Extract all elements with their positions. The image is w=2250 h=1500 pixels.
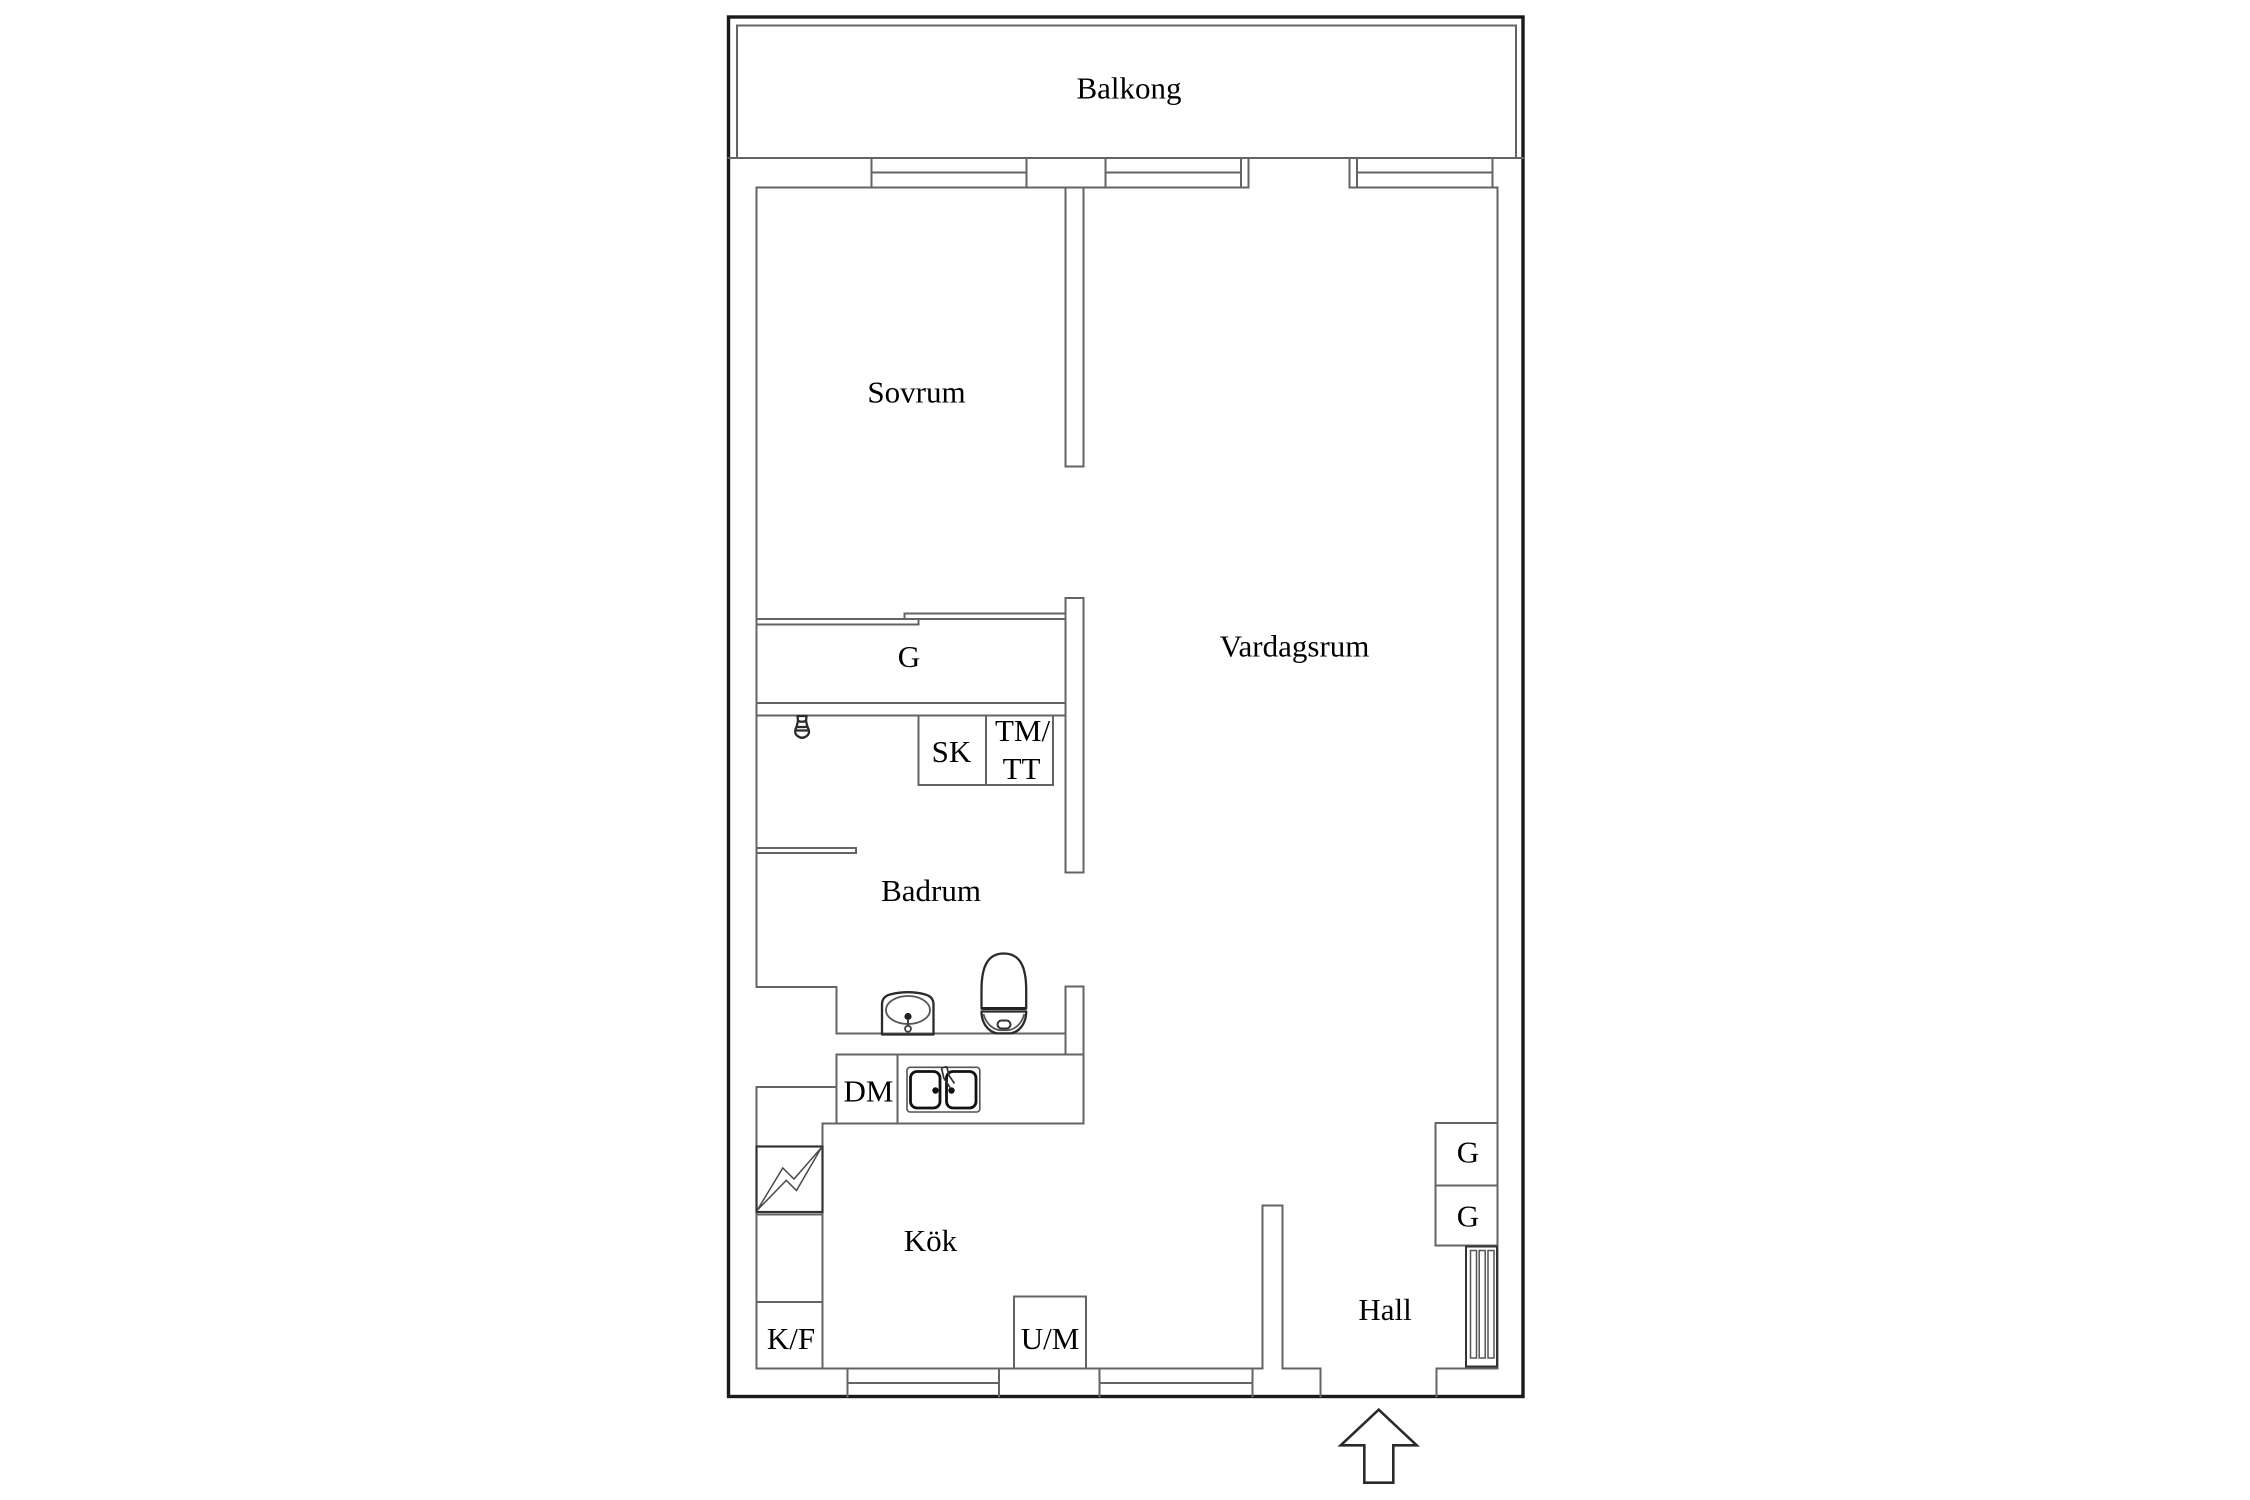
svg-text:Sovrum: Sovrum [867, 375, 965, 410]
svg-text:Kök: Kök [904, 1223, 958, 1258]
svg-text:TM/: TM/ [995, 713, 1051, 748]
svg-text:G: G [1457, 1135, 1479, 1170]
svg-text:SK: SK [932, 734, 972, 769]
svg-text:G: G [1457, 1199, 1479, 1234]
svg-text:Vardagsrum: Vardagsrum [1220, 629, 1370, 664]
svg-text:K/F: K/F [767, 1321, 815, 1356]
svg-text:DM: DM [844, 1074, 894, 1109]
svg-text:Balkong: Balkong [1076, 71, 1181, 106]
svg-text:Badrum: Badrum [881, 873, 981, 908]
svg-text:U/M: U/M [1021, 1321, 1080, 1356]
svg-text:TT: TT [1003, 751, 1041, 786]
svg-text:G: G [898, 639, 920, 674]
svg-text:Hall: Hall [1358, 1292, 1411, 1327]
